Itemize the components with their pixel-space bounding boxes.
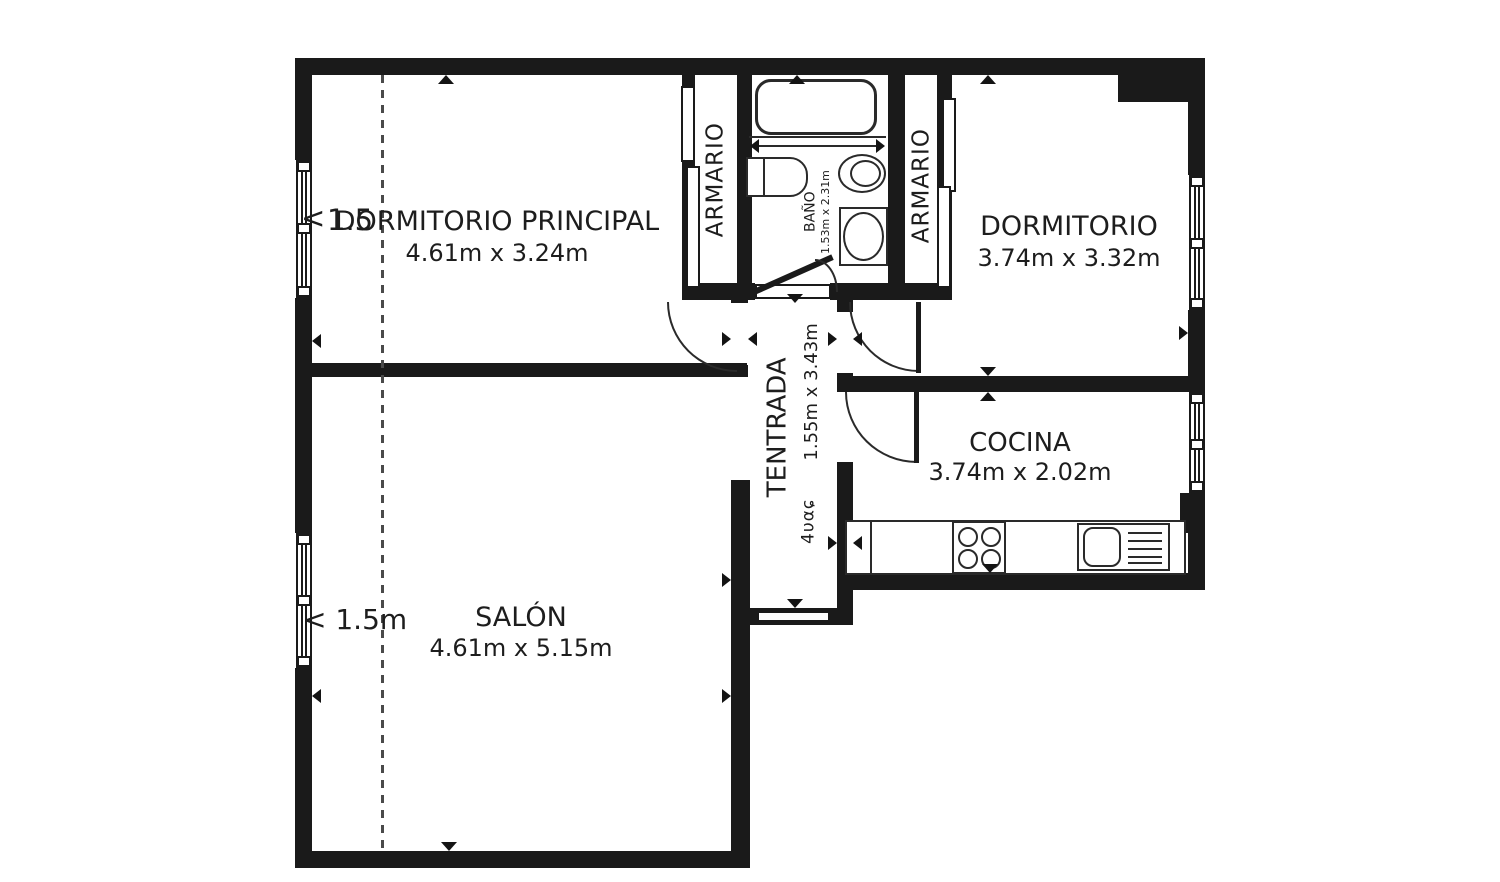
wall-left [295,668,312,868]
dimension-arrow [750,139,759,153]
wall-bottom [295,851,750,868]
floor-plan: DORMITORIO PRINCIPAL 4.61m x 3.24m DORMI… [0,0,1500,882]
window-sill [1190,393,1204,404]
wall-corner-notch [1118,75,1192,102]
dimension-arrow [722,689,731,703]
entrance-door [757,611,830,622]
dimension-arrow [828,332,837,346]
dimension-arrow [787,599,803,608]
room-dims-dormitorio-principal: 4.61m x 3.24m [302,240,692,266]
wall-top [295,58,1205,75]
sink-bowl-icon [843,212,884,261]
dimension-arrow [312,334,321,348]
wall-bano-right [888,75,905,283]
dimension-arrow [980,367,996,376]
window-cocina [1189,392,1205,493]
dp-window-marker: < [301,203,325,235]
dp-window-width-label: 1.5 [327,205,373,237]
window-sill [1190,439,1204,450]
window-sill [1190,481,1204,492]
door-arc-bano [815,259,838,292]
drainboard-line [1128,532,1162,534]
wc-inner-icon [850,160,881,187]
dimension-arrow [853,536,862,550]
dimension-arrow [853,332,862,346]
wall-cocina-bottom [837,573,1205,590]
window-sill [1190,176,1204,187]
dimension-arrow [828,536,837,550]
toilet-icon [746,157,808,197]
window-sill [297,161,311,172]
room-label-cocina: COCINA [892,429,1148,458]
dimension-arrow [748,332,757,346]
salon-window-width-label: < 1.5m [303,605,407,636]
entrada-garbled-text: 4υαɕ [800,486,819,556]
room-label-bano: BAÑO [803,184,818,240]
dimension-arrow [789,75,805,84]
dimension-arrow [982,564,998,573]
drainboard-line [1128,540,1162,542]
wall-left [295,58,312,160]
room-label-armario-left: ARMARIO [703,110,728,250]
room-dims-entrada: 1.55m x 3.43m [802,322,822,462]
wall-corridor-right [837,373,853,392]
dimension-arrow [438,75,454,84]
burner-icon [981,527,1001,547]
armario-left-door-panel [681,86,695,162]
room-label-salon: SALÓN [371,603,671,633]
window-sill [1190,298,1204,309]
wall-divider-dp-salon [312,363,747,377]
bathtub-dim-line [753,145,883,147]
room-dims-bano: 1.53m x 2.31m [820,162,832,262]
room-dims-dormitorio: 3.74m x 3.32m [939,245,1199,271]
drainboard-line [1128,556,1162,558]
toilet-tank-line [763,159,765,195]
bathtub-icon [755,79,877,135]
room-label-dormitorio: DORMITORIO [939,212,1199,242]
dimension-arrow [787,294,803,303]
wall-corridor-left [731,285,748,303]
bathtub-rim-line [749,136,886,138]
room-label-armario-right: ARMARIO [909,116,934,256]
dimension-arrow [876,139,885,153]
kitchen-sink-bowl-icon [1083,527,1121,567]
drainboard-line [1128,562,1162,564]
window-dormitorio [1189,175,1205,310]
window-sill [297,534,311,545]
window-sill [297,286,311,297]
room-dims-cocina: 3.74m x 2.02m [892,459,1148,485]
wall-divider-dorm-cocina [853,376,1205,392]
dimension-arrow [980,75,996,84]
window-sill [297,656,311,667]
dimension-arrow [980,392,996,401]
armario-right-door-panel [942,98,956,192]
wall-left [295,298,312,533]
window-salon [296,533,312,668]
kitchen-counter-divider [870,520,872,575]
burner-icon [958,527,978,547]
drainboard-line [1128,548,1162,550]
dimension-arrow [1179,326,1188,340]
section-dashed-line [381,75,384,851]
room-dims-salon: 4.61m x 5.15m [371,635,671,661]
dimension-arrow [722,573,731,587]
dimension-arrow [441,842,457,851]
dimension-arrow [312,689,321,703]
room-label-entrada: TENTRADA [764,352,793,502]
door-leaf-dormitorio [916,302,921,373]
burner-icon [958,549,978,569]
wall-corridor-left [731,480,750,851]
dimension-arrow [722,332,731,346]
